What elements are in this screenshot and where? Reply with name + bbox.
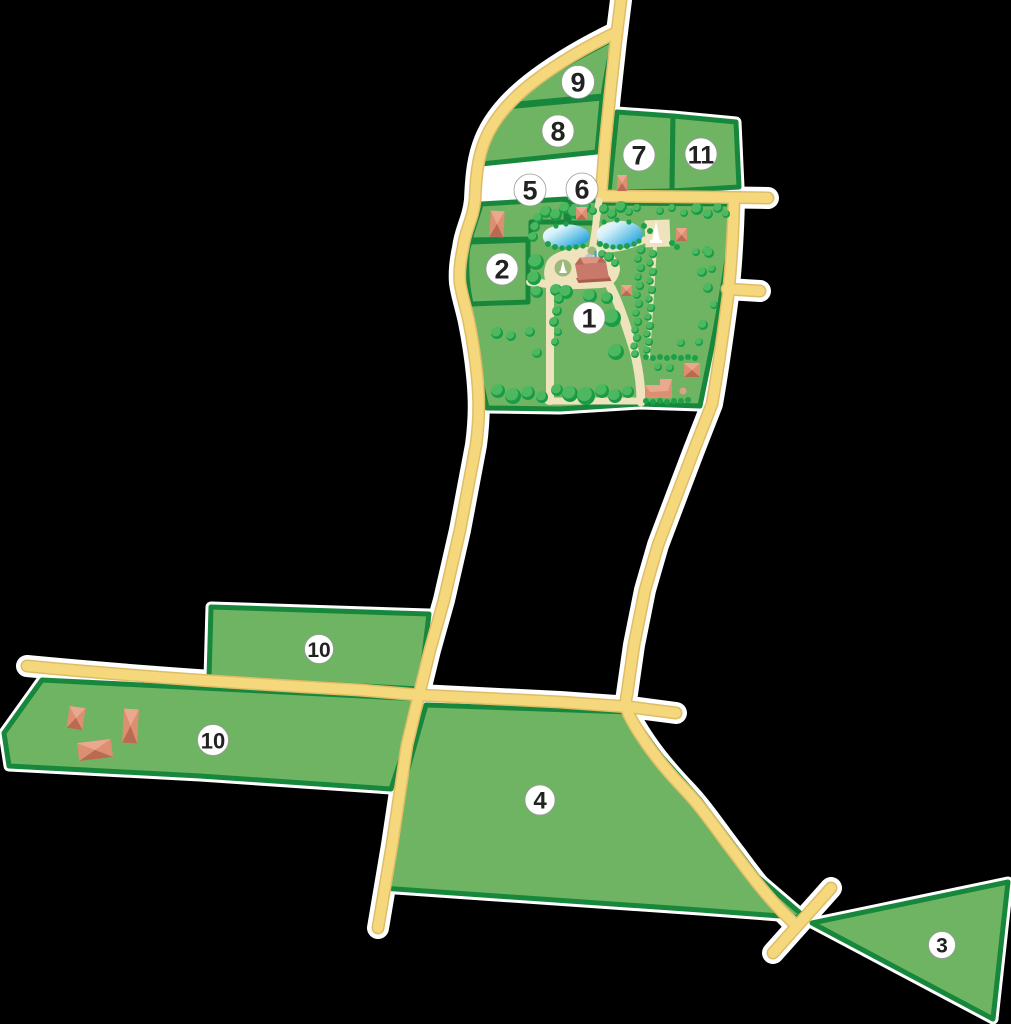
svg-text:2: 2 <box>494 255 509 285</box>
svg-text:5: 5 <box>522 176 537 206</box>
svg-text:9: 9 <box>570 68 585 98</box>
svg-text:11: 11 <box>688 142 715 170</box>
svg-text:1: 1 <box>581 304 596 334</box>
svg-text:8: 8 <box>550 117 565 147</box>
svg-text:10: 10 <box>307 639 330 662</box>
svg-text:4: 4 <box>533 788 547 815</box>
svg-text:6: 6 <box>574 175 589 205</box>
svg-text:7: 7 <box>631 141 646 171</box>
svg-text:3: 3 <box>936 935 948 958</box>
svg-text:10: 10 <box>201 729 225 754</box>
